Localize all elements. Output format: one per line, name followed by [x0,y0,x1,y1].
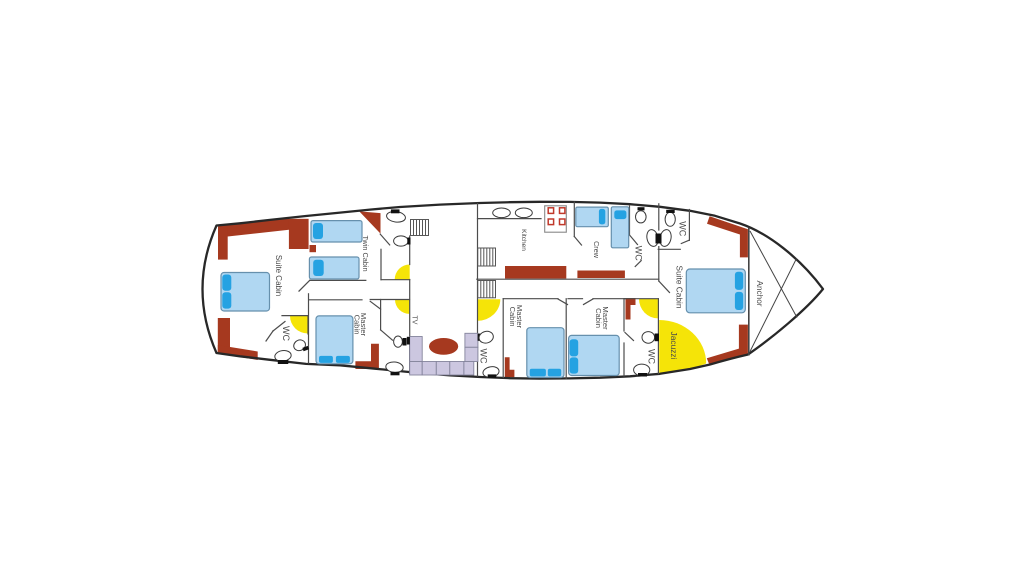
svg-text:WC: WC [479,349,489,364]
svg-text:Crew: Crew [592,241,601,259]
svg-text:Suite Cabin: Suite Cabin [274,255,283,296]
svg-text:WC: WC [646,349,656,364]
svg-text:WC: WC [678,221,688,236]
svg-text:Cabin: Cabin [352,315,361,335]
svg-text:Anchor: Anchor [755,281,764,307]
svg-text:TV: TV [411,316,418,325]
svg-text:Cabin: Cabin [594,308,603,328]
svg-text:WC: WC [633,246,643,261]
svg-text:WC: WC [281,326,291,341]
svg-text:Suite Cabin: Suite Cabin [675,266,685,309]
svg-text:Kitchen: Kitchen [520,229,527,251]
svg-text:Jacuzzi: Jacuzzi [669,332,679,360]
svg-text:Cabin: Cabin [508,307,517,327]
svg-text:Twin Cabin: Twin Cabin [361,235,370,271]
